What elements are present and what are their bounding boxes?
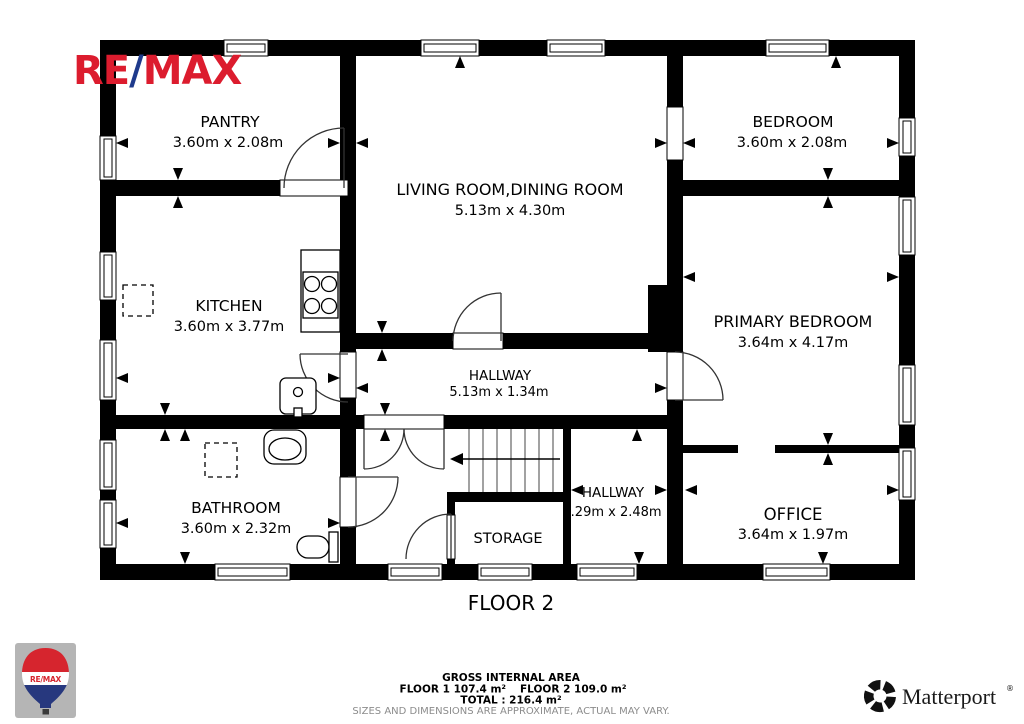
room-label-hallway-upper: HALLWAY: [469, 368, 532, 384]
room-dims-bedroom: 3.60m x 2.08m: [737, 135, 848, 151]
room-label-storage: STORAGE: [473, 531, 542, 547]
room-dims-living-room: 5.13m x 4.30m: [455, 203, 566, 219]
appliance-placeholder-icon: [123, 285, 153, 316]
room-label-office: OFFICE: [764, 505, 823, 524]
toilet-icon: [297, 536, 329, 558]
room-label-primary-bedroom: PRIMARY BEDROOM: [714, 312, 873, 331]
footer-area-title: GROSS INTERNAL AREA: [442, 672, 581, 684]
room-dims-office: 3.64m x 1.97m: [738, 527, 849, 543]
room-dims-kitchen: 3.60m x 3.77m: [174, 319, 285, 335]
floor-plan-svg: PANTRY 3.60m x 2.08m LIVING ROOM,DINING …: [0, 0, 1024, 724]
stairs-direction-arrow-icon: [450, 453, 463, 465]
floor-title: FLOOR 2: [468, 591, 554, 615]
room-dims-hallway-lower: 5.29m x 2.48m: [562, 505, 661, 520]
room-dims-bathroom: 3.60m x 2.32m: [181, 521, 292, 537]
svg-text:RE/MAX: RE/MAX: [30, 675, 61, 684]
matterport-pinwheel-icon: [861, 679, 899, 716]
room-label-pantry: PANTRY: [200, 113, 260, 131]
registered-mark: ®: [1006, 684, 1014, 693]
footer-disclaimer: SIZES AND DIMENSIONS ARE APPROXIMATE, AC…: [352, 706, 669, 717]
remax-balloon-logo-icon: RE/MAX: [15, 643, 76, 718]
room-label-hallway-lower: HALLWAY: [582, 485, 645, 501]
floorplan-page: PANTRY 3.60m x 2.08m LIVING ROOM,DINING …: [0, 0, 1024, 724]
room-label-kitchen: KITCHEN: [195, 297, 262, 315]
appliance-placeholder-icon: [205, 443, 237, 477]
room-dims-primary-bedroom: 3.64m x 4.17m: [738, 335, 849, 351]
room-label-living-room: LIVING ROOM,DINING ROOM: [396, 180, 623, 199]
room-dims-hallway-upper: 5.13m x 1.34m: [449, 385, 548, 400]
room-dims-pantry: 3.60m x 2.08m: [173, 135, 284, 151]
footer-total-area: TOTAL : 216.4 m²: [460, 695, 562, 707]
room-label-bedroom: BEDROOM: [753, 113, 834, 131]
room-label-bathroom: BATHROOM: [191, 499, 281, 517]
bathroom-fixtures: [205, 430, 338, 562]
matterport-label: Matterport: [902, 684, 996, 709]
footer: GROSS INTERNAL AREA FLOOR 1 107.4 m² FLO…: [352, 672, 669, 717]
remax-wordmark: RE/MAX: [73, 48, 242, 94]
staircase: [450, 429, 560, 492]
matterport-logo: Matterport ®: [861, 679, 1014, 716]
